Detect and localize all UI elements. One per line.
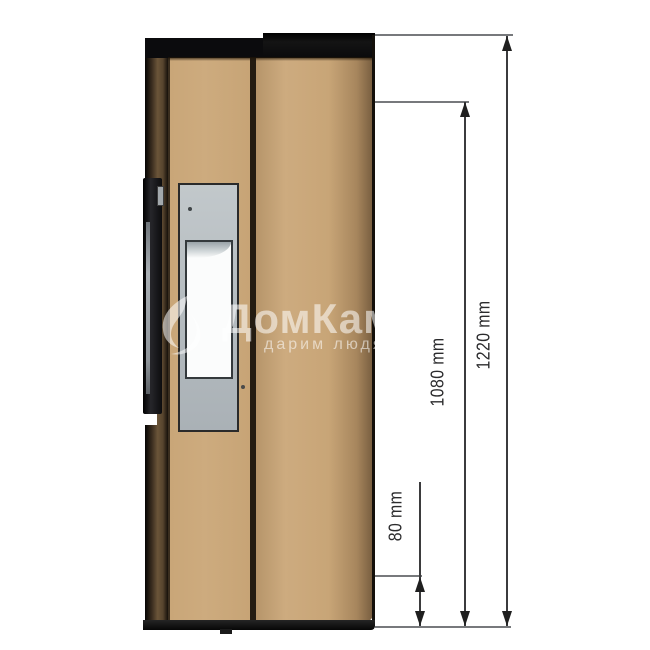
dimension-line-80 (419, 482, 421, 626)
door-screw (188, 207, 192, 211)
dimension-label-mid-height: 1080 mm (428, 337, 449, 406)
extension-line-1080 (375, 101, 469, 103)
stove-foot (220, 629, 232, 634)
dimension-label-overall-height: 1220 mm (474, 300, 495, 369)
arrow-down-icon (460, 611, 470, 626)
stove-cap-shadow (168, 57, 373, 61)
door-hinge-highlight (146, 222, 150, 394)
dimension-line-1220 (506, 36, 508, 626)
arrow-down-icon (415, 611, 425, 626)
dimension-label-base-offset: 80 mm (386, 491, 407, 542)
watermark-title: ДомКамин (222, 298, 448, 340)
flame-logo-icon (157, 294, 203, 358)
stove-top-cap-left (145, 38, 264, 58)
product-dimension-diagram: 1220 mm 1080 mm 80 mm ДомКамин дарим люд… (0, 0, 650, 650)
dimension-line-1080 (464, 102, 466, 626)
watermark-subtitle: дарим людям (264, 336, 399, 354)
stove-top-cap-right (263, 33, 375, 58)
arrow-up-icon (460, 102, 470, 117)
arrow-up-icon (502, 36, 512, 51)
panel-rivet (241, 385, 245, 389)
extension-line-top (375, 34, 513, 36)
glass-reflection (187, 242, 231, 258)
arrow-up-icon (415, 577, 425, 592)
door-latch-tab (157, 186, 164, 206)
arrow-down-icon (502, 611, 512, 626)
extension-line-bottom (375, 626, 511, 628)
door-hinge-notch (143, 414, 157, 425)
stove-base (143, 620, 375, 630)
